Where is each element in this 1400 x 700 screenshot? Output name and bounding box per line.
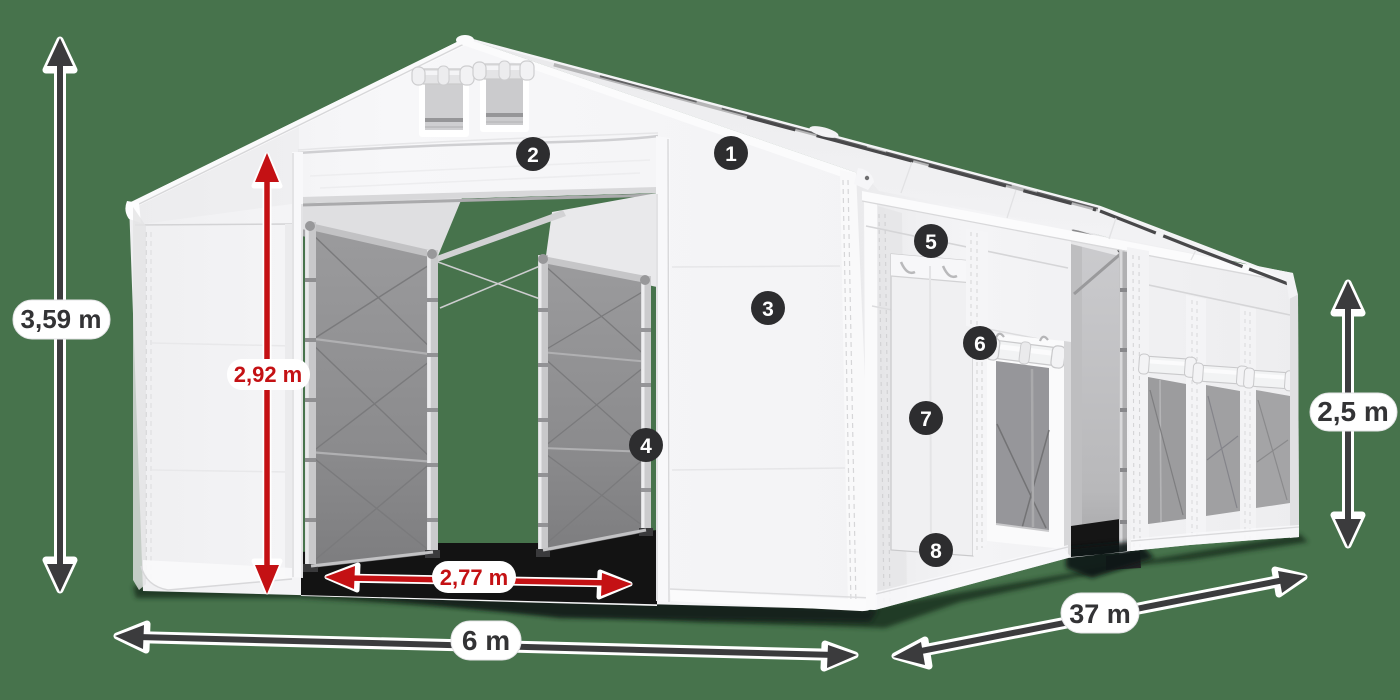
svg-text:8: 8 [930,540,942,563]
svg-text:3,59 m: 3,59 m [21,304,102,334]
svg-text:2: 2 [527,144,539,167]
svg-text:5: 5 [925,231,937,254]
svg-text:6 m: 6 m [462,625,510,656]
svg-text:2,77 m: 2,77 m [440,565,509,590]
svg-text:4: 4 [640,435,652,458]
svg-text:2,92 m: 2,92 m [234,362,303,387]
svg-text:2,5 m: 2,5 m [1317,396,1389,427]
svg-text:6: 6 [974,333,986,356]
svg-text:7: 7 [920,408,932,431]
svg-text:3: 3 [762,298,774,321]
svg-text:1: 1 [725,143,737,166]
svg-text:37 m: 37 m [1069,599,1131,629]
